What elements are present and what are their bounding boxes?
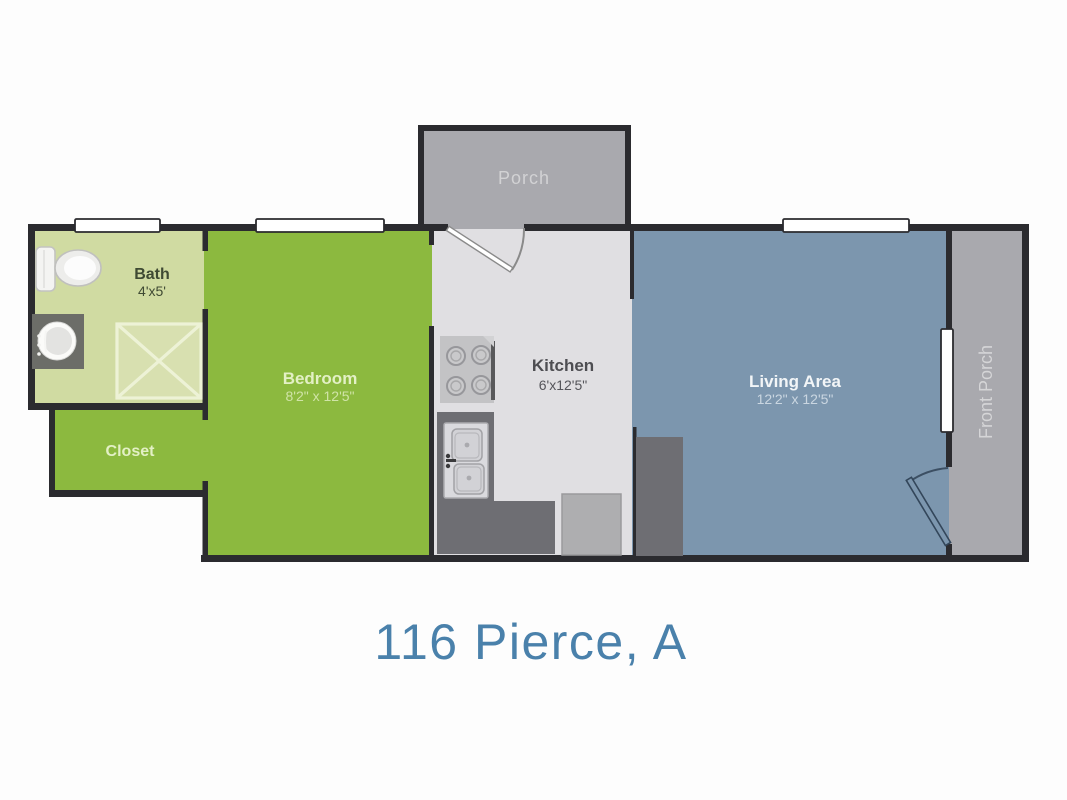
svg-text:116 Pierce, A: 116 Pierce, A: [374, 614, 687, 670]
svg-text:Bath: Bath: [134, 266, 170, 283]
svg-text:4'x5': 4'x5': [138, 283, 166, 299]
svg-text:Closet: Closet: [106, 443, 156, 460]
svg-text:6'x12'5": 6'x12'5": [539, 377, 587, 393]
svg-text:12'2" x 12'5": 12'2" x 12'5": [757, 391, 834, 407]
svg-text:Living Area: Living Area: [749, 372, 841, 391]
svg-text:Porch: Porch: [498, 168, 550, 188]
svg-text:Front Porch: Front Porch: [976, 345, 996, 439]
svg-text:Bedroom: Bedroom: [283, 369, 358, 388]
svg-text:8'2" x 12'5": 8'2" x 12'5": [286, 388, 355, 404]
svg-text:Kitchen: Kitchen: [532, 356, 594, 375]
